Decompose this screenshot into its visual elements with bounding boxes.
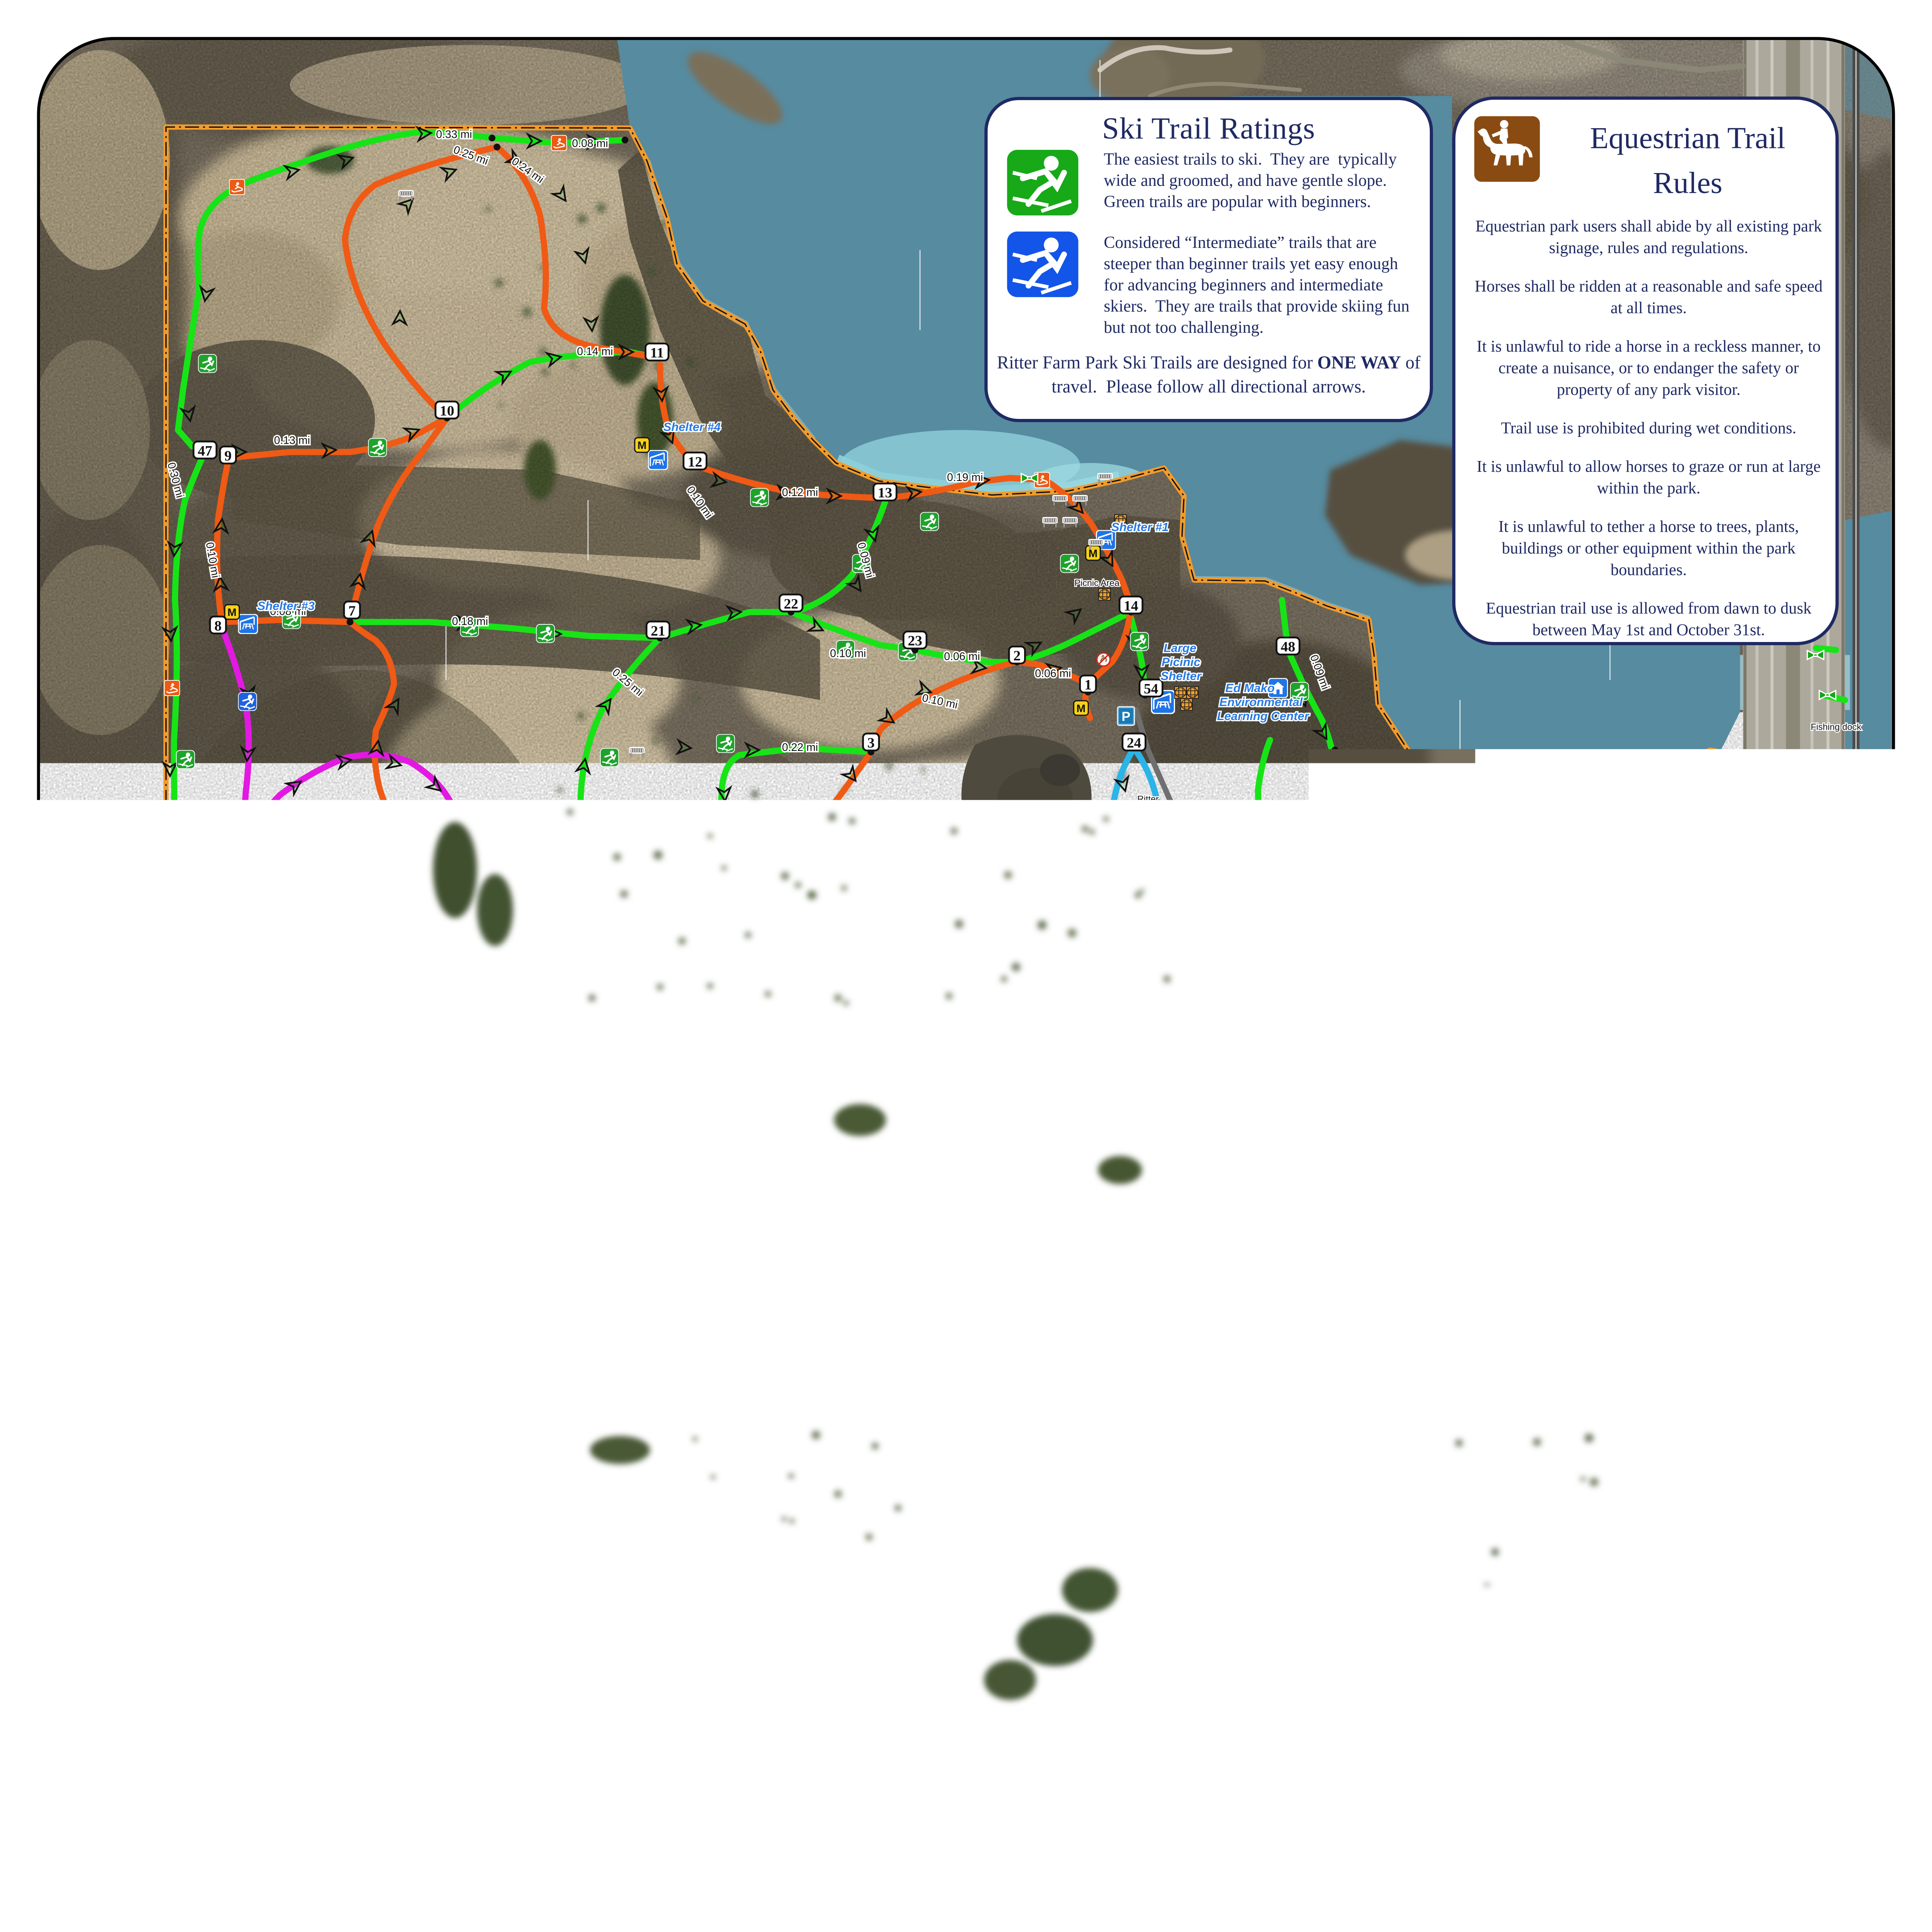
svg-text:35: 35 [1125, 1119, 1139, 1135]
svg-text:Dakota C: Dakota C [1824, 1896, 1866, 1908]
svg-text:Road: Road [1656, 1682, 1690, 1701]
svg-text:43: 43 [563, 1538, 577, 1554]
svg-text:Shelter #4: Shelter #4 [663, 421, 721, 434]
svg-text:24: 24 [1127, 735, 1141, 751]
svg-text:35: 35 [1755, 1071, 1769, 1085]
svg-text:28: 28 [1253, 1165, 1267, 1181]
svg-text:Park Boundary: Park Boundary [1656, 1715, 1755, 1733]
svg-text:Fishing dock: Fishing dock [1811, 722, 1862, 732]
svg-text:Mader Loop (2.0 mi): Mader Loop (2.0 mi) [1656, 1589, 1794, 1607]
svg-text:23: 23 [908, 633, 922, 649]
svg-text:Ritter: Ritter [1137, 794, 1159, 804]
svg-text:Picnic Area: Picnic Area [1075, 578, 1120, 588]
svg-text:45: 45 [174, 1276, 188, 1292]
svg-text:44: 44 [561, 1375, 575, 1391]
svg-text:0: 0 [1056, 1796, 1062, 1809]
svg-text:Dog Park: Dog Park [1620, 1182, 1700, 1204]
svg-text:Building: Building [1483, 1586, 1541, 1604]
svg-text:Shelter: Shelter [1483, 1617, 1530, 1636]
svg-text:Kenrick Avenue: Kenrick Avenue [1830, 856, 1845, 954]
svg-text:0.28 mi: 0.28 mi [417, 1384, 453, 1397]
svg-text:8: 8 [214, 618, 221, 634]
svg-text:38: 38 [983, 1223, 997, 1239]
svg-text:Ritter: Ritter [583, 800, 682, 847]
svg-text:Archery: Archery [872, 1443, 918, 1457]
svg-text:0.27 mi: 0.27 mi [692, 1362, 728, 1375]
svg-text:South Forty: South Forty [755, 1638, 869, 1663]
svg-text:0.13 mi: 0.13 mi [274, 434, 310, 447]
svg-text:Shelter #2: Shelter #2 [637, 994, 695, 1008]
svg-text:40: 40 [864, 1483, 878, 1499]
svg-text:19: 19 [253, 841, 267, 857]
svg-text:22: 22 [784, 596, 798, 612]
svg-text:0.19 mi: 0.19 mi [947, 471, 983, 483]
svg-text:36: 36 [1161, 1137, 1175, 1153]
svg-text:Park: Park [590, 912, 675, 960]
svg-text:Matterhorn Trail (1.6 mi): Matterhorn Trail (1.6 mi) [1656, 1620, 1822, 1638]
svg-text:34: 34 [1023, 1086, 1037, 1102]
svg-text:0.22 mi: 0.22 mi [782, 741, 818, 753]
svg-text:15: 15 [511, 1271, 525, 1287]
svg-text:195th Street W.: 195th Street W. [1391, 1403, 1469, 1415]
svg-text:52: 52 [1283, 901, 1297, 917]
svg-text:E: E [1266, 1670, 1281, 1695]
svg-text:0.22 mi: 0.22 mi [1420, 1180, 1456, 1192]
svg-text:Intersection Marker: Intersection Marker [1483, 1554, 1614, 1573]
svg-text:0.06 mi: 0.06 mi [1035, 667, 1071, 679]
svg-text:2: 2 [1013, 648, 1020, 664]
svg-text:0.18 mi: 0.18 mi [452, 615, 488, 628]
svg-text:Archery: Archery [773, 1674, 851, 1699]
svg-text:Grill: Grill [1483, 1743, 1514, 1761]
svg-text:Shelter #1: Shelter #1 [1111, 521, 1169, 534]
svg-text:Shelter: Shelter [1161, 670, 1202, 683]
svg-text:41: 41 [806, 1760, 820, 1776]
svg-text:25: 25 [1181, 950, 1195, 966]
svg-text:Double Grill: Double Grill [1483, 1774, 1567, 1792]
svg-text:12: 12 [688, 454, 702, 470]
svg-text:14: 14 [1124, 598, 1138, 614]
svg-text:Environmental: Environmental [1220, 696, 1303, 709]
svg-text:Archery Range: Archery Range [1483, 1648, 1583, 1667]
svg-text:0.14 mi: 0.14 mi [577, 345, 613, 357]
svg-text:Trail Maps: Trail Maps [1483, 1523, 1556, 1542]
svg-text:Building: Building [871, 1457, 919, 1471]
svg-text:Lakeville: Lakeville [145, 1527, 266, 1562]
svg-text:11: 11 [650, 345, 664, 361]
svg-text:Lakeville: Lakeville [1215, 1680, 1235, 1686]
svg-text:0.10 mi: 0.10 mi [830, 647, 866, 659]
svg-text:27: 27 [1237, 1086, 1251, 1102]
svg-text:S: S [1218, 1719, 1233, 1744]
svg-text:6: 6 [528, 978, 535, 994]
svg-text:Archery Range (0.9 mi): Archery Range (0.9 mi) [1656, 1526, 1813, 1545]
svg-text:Learning Center: Learning Center [1217, 710, 1310, 723]
svg-text:Log Cabin: Log Cabin [1265, 813, 1323, 827]
svg-text:1: 1 [1085, 677, 1092, 693]
svg-text:0.13 mi: 0.13 mi [1272, 1200, 1308, 1212]
svg-text:17: 17 [228, 1293, 242, 1309]
svg-text:0.06 mi: 0.06 mi [1282, 1065, 1318, 1077]
svg-text:46: 46 [171, 925, 185, 941]
svg-text:Range: Range [781, 1710, 843, 1735]
svg-text:Miles: Miles [1210, 1818, 1237, 1831]
svg-text:Farm Silo: Farm Silo [1129, 805, 1167, 815]
svg-text:Bridge: Bridge [1483, 1711, 1528, 1730]
svg-text:9: 9 [224, 448, 231, 464]
svg-text:3: 3 [867, 735, 875, 751]
svg-text:Parking: Parking [1483, 1806, 1535, 1824]
svg-text:Bench: Bench [1483, 1680, 1525, 1699]
svg-text:47: 47 [198, 443, 212, 459]
svg-text:0.1: 0.1 [1218, 1796, 1234, 1809]
svg-text:50: 50 [1361, 823, 1375, 839]
svg-text:20: 20 [218, 848, 232, 864]
svg-text:0.09 mi: 0.09 mi [1075, 1086, 1111, 1099]
svg-text:0.06 mi: 0.06 mi [550, 1018, 586, 1030]
svg-text:Lake Marion: Lake Marion [1492, 797, 1638, 825]
svg-text:0.08 mi: 0.08 mi [572, 137, 608, 149]
svg-text:10: 10 [440, 402, 454, 419]
svg-text:Shelter #3: Shelter #3 [258, 600, 315, 613]
svg-text:30: 30 [1373, 1169, 1387, 1185]
svg-text:0.12 mi: 0.12 mi [782, 486, 818, 498]
svg-text:Ritter Farm: Ritter Farm [1610, 1154, 1709, 1176]
svg-text:16: 16 [413, 1163, 427, 1179]
svg-text:29: 29 [1343, 1185, 1357, 1201]
svg-text:Ed Mako: Ed Mako [1226, 682, 1275, 695]
svg-text:42: 42 [675, 1792, 689, 1808]
svg-text:5: 5 [648, 1015, 656, 1031]
svg-text:Kitzbuhel Trail (0.7 mi): Kitzbuhel Trail (0.7 mi) [1656, 1558, 1813, 1576]
svg-text:13: 13 [878, 485, 892, 501]
svg-text:18: 18 [291, 1218, 305, 1234]
svg-text:49: 49 [1328, 758, 1342, 774]
svg-text:Farm: Farm [584, 856, 680, 904]
svg-text:51: 51 [1320, 893, 1334, 909]
svg-text:0.19 mi: 0.19 mi [672, 1529, 708, 1542]
svg-text:0.2: 0.2 [1376, 1796, 1391, 1809]
svg-text:53: 53 [1260, 841, 1274, 857]
svg-text:Picinic: Picinic [1162, 656, 1201, 669]
svg-text:Trail: Trail [1656, 1651, 1687, 1670]
svg-text:7: 7 [348, 603, 356, 619]
svg-text:0.05: 0.05 [1130, 1796, 1151, 1809]
svg-text:39: 39 [882, 1410, 896, 1426]
svg-text:54: 54 [1144, 681, 1158, 697]
svg-text:0.06 mi: 0.06 mi [944, 650, 980, 662]
svg-text:0.10 mi: 0.10 mi [1057, 1200, 1093, 1212]
svg-text:21: 21 [651, 623, 665, 639]
svg-text:Large: Large [1164, 642, 1197, 655]
svg-text:0.33 mi: 0.33 mi [436, 128, 472, 141]
svg-text:37: 37 [1130, 1190, 1144, 1206]
svg-text:48: 48 [1281, 639, 1295, 655]
